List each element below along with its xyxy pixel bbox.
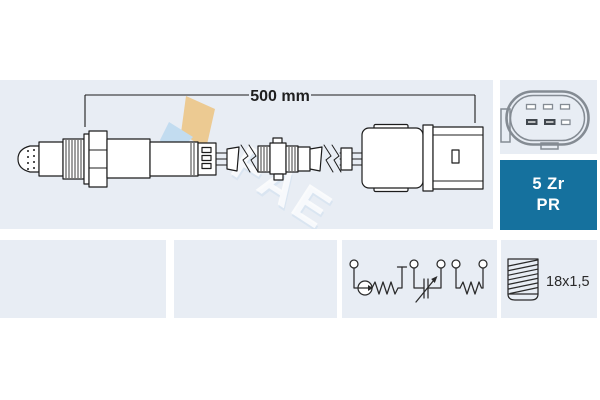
hex-nut [89, 131, 107, 187]
cable-break-icon-2 [310, 145, 341, 172]
sensor-sleeve [150, 142, 198, 176]
badge-line-2: PR [537, 195, 561, 216]
sensor-diagram: 500 mm [0, 80, 493, 229]
wiring-schematic-panel [342, 240, 497, 318]
product-diagram-card: FAE FAE 500 mm [0, 0, 600, 400]
empty-panel-left [0, 240, 166, 318]
dimension-label: 500 mm [250, 88, 310, 105]
cable-break-icon [227, 145, 258, 172]
sensor-lower-body [39, 142, 63, 176]
sensor-thread [63, 139, 84, 179]
thread-size-panel: 18x1,5 [501, 240, 597, 318]
connector-pins [526, 105, 570, 126]
sensor-tip [18, 146, 39, 172]
sensor-upper-body [107, 139, 150, 178]
thread-size-label: 18x1,5 [546, 274, 590, 290]
nernst-cell-symbol [410, 260, 445, 302]
connector-face-icon [500, 80, 597, 154]
badge-line-1: 5 Zr [532, 174, 564, 195]
connector-housing [362, 125, 433, 192]
connector-inner-shell [511, 96, 585, 141]
spec-badge: 5 Zr PR [500, 160, 597, 230]
thread-size-group: 18x1,5 [501, 240, 597, 318]
threaded-stud-icon [508, 259, 538, 300]
heater-symbol [452, 260, 487, 294]
connector-outer-shell [507, 92, 589, 145]
sensor-washer [84, 134, 89, 184]
wiring-schematic-icon [342, 240, 497, 318]
sensor-drawing-panel: FAE FAE 500 mm [0, 80, 493, 229]
pump-cell-symbol [350, 260, 407, 295]
connector-face-panel [500, 80, 597, 154]
cable-grommet [198, 143, 216, 175]
cable-mount-grommet [258, 138, 310, 180]
cable-wires [216, 153, 227, 165]
connector-plug [433, 127, 483, 189]
plug-wires [340, 148, 362, 170]
empty-panel-middle [174, 240, 337, 318]
